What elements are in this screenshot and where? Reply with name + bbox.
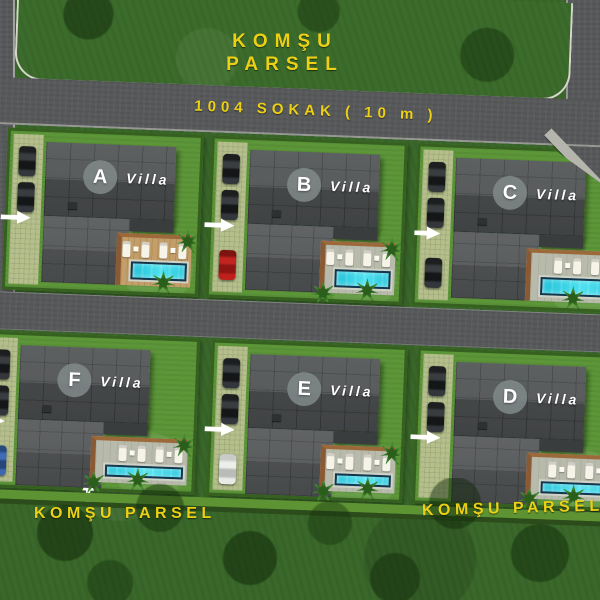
sun-loungers xyxy=(554,258,600,276)
villa-plot-c: C Villa xyxy=(412,143,600,313)
parked-car xyxy=(0,385,9,416)
villa-b-label: B Villa xyxy=(286,167,374,204)
side-table xyxy=(170,248,175,253)
chimney xyxy=(478,422,487,429)
villa-c-letter-badge: C xyxy=(492,175,527,210)
top-parcel-label-line2: PARSEL xyxy=(165,53,405,76)
villa-a-driveway xyxy=(8,134,44,285)
villa-d-name: Villa xyxy=(536,390,580,408)
villa-b-driveway xyxy=(212,142,248,293)
villa-plot-d: D Villa xyxy=(412,347,600,511)
lounger xyxy=(326,249,335,265)
side-table xyxy=(374,460,379,465)
lounger xyxy=(155,446,164,462)
villa-d-roof: D Villa xyxy=(454,362,587,441)
chimney xyxy=(42,405,51,412)
parked-car xyxy=(0,445,7,476)
parked-car xyxy=(17,182,35,213)
parked-car xyxy=(222,154,240,185)
side-table xyxy=(337,458,342,463)
lounger xyxy=(326,453,335,469)
villa-f-roof: F Villa xyxy=(18,345,151,424)
lounger xyxy=(573,258,582,274)
lounger xyxy=(363,454,372,470)
villa-f-name: Villa xyxy=(100,373,144,391)
villa-b-letter-badge: B xyxy=(286,167,321,202)
side-table xyxy=(374,256,379,261)
lounger xyxy=(548,461,557,477)
parked-car xyxy=(222,358,240,389)
street-name-label: 1004 SOKAK ( 10 m ) xyxy=(181,97,451,124)
parked-car xyxy=(427,198,445,229)
villa-c-canopy xyxy=(539,235,583,249)
parcel-site: 1004 SOKAK ( 10 m ) A Villa xyxy=(0,76,600,532)
villa-plot-e: E Villa xyxy=(206,339,408,502)
side-table xyxy=(133,246,138,251)
villa-plot-a: A Villa xyxy=(2,127,204,296)
lounger xyxy=(567,462,576,478)
side-table xyxy=(337,254,342,259)
villa-a-name: Villa xyxy=(126,170,170,188)
villa-c-label: C Villa xyxy=(492,175,580,212)
parked-car xyxy=(424,258,442,289)
villa-d-letter-badge: D xyxy=(492,379,527,414)
villa-plot-f: F Villa xyxy=(0,331,200,495)
villa-f-letter-badge: F xyxy=(57,363,92,398)
villa-b-canopy xyxy=(333,227,377,241)
villa-a-letter-badge: A xyxy=(83,159,118,194)
villa-e-label: E Villa xyxy=(287,371,375,408)
villa-e-driveway xyxy=(212,346,248,491)
parked-car xyxy=(428,162,446,193)
villa-e-letter-badge: E xyxy=(287,371,322,406)
side-table xyxy=(559,467,564,472)
villa-f-canopy xyxy=(103,422,147,436)
chimney xyxy=(272,210,281,217)
lounger xyxy=(554,258,563,274)
top-parcel-label-line1: KOMŞU xyxy=(165,30,405,53)
bottom-left-parcel-label: KOMŞU PARSEL xyxy=(34,505,216,523)
villa-c-pool-deck xyxy=(525,249,600,305)
lounger xyxy=(345,454,354,470)
villa-e-canopy xyxy=(333,431,377,445)
chimney xyxy=(272,414,281,421)
villa-d-canopy xyxy=(539,439,583,453)
lounger xyxy=(159,242,168,258)
parked-car xyxy=(428,366,446,397)
side-table xyxy=(565,263,570,268)
villa-b-roof: B Villa xyxy=(248,150,381,229)
lounger xyxy=(363,250,372,266)
chimney xyxy=(478,218,487,225)
villa-a-pool-deck xyxy=(115,233,192,288)
villa-a-label: A Villa xyxy=(83,159,171,196)
villa-d-driveway xyxy=(418,354,454,499)
site-plan: 1004 SOKAK ( 10 m ) A Villa xyxy=(0,0,600,600)
parked-car xyxy=(218,250,236,281)
parked-car xyxy=(0,349,11,380)
top-parcel-label: KOMŞU PARSEL xyxy=(165,30,405,76)
lounger xyxy=(137,446,146,462)
lounger xyxy=(118,445,127,461)
parked-car xyxy=(221,394,239,425)
lounger xyxy=(591,259,600,275)
villa-a-canopy xyxy=(129,219,173,233)
parked-car xyxy=(221,190,239,221)
villa-plot-b: B Villa xyxy=(206,135,408,304)
villa-c-name: Villa xyxy=(536,186,580,204)
villa-b-name: Villa xyxy=(330,178,374,196)
villa-c-roof: C Villa xyxy=(453,158,586,237)
side-table xyxy=(596,468,600,473)
lounger xyxy=(122,241,131,257)
parked-car xyxy=(427,402,445,433)
villa-f-label: F Villa xyxy=(57,363,145,400)
villa-a-roof: A Villa xyxy=(44,142,177,221)
parked-car xyxy=(18,146,36,177)
lounger xyxy=(585,463,594,479)
villa-d-label: D Villa xyxy=(492,379,580,416)
villa-e-roof: E Villa xyxy=(248,354,381,433)
side-table xyxy=(130,450,135,455)
lounger xyxy=(141,242,150,258)
side-table xyxy=(167,452,172,457)
villa-e-name: Villa xyxy=(330,382,374,400)
sun-loungers xyxy=(548,461,600,479)
parked-car xyxy=(219,454,237,485)
chimney xyxy=(68,202,77,209)
lounger xyxy=(345,250,354,266)
villa-c-driveway xyxy=(418,149,454,300)
